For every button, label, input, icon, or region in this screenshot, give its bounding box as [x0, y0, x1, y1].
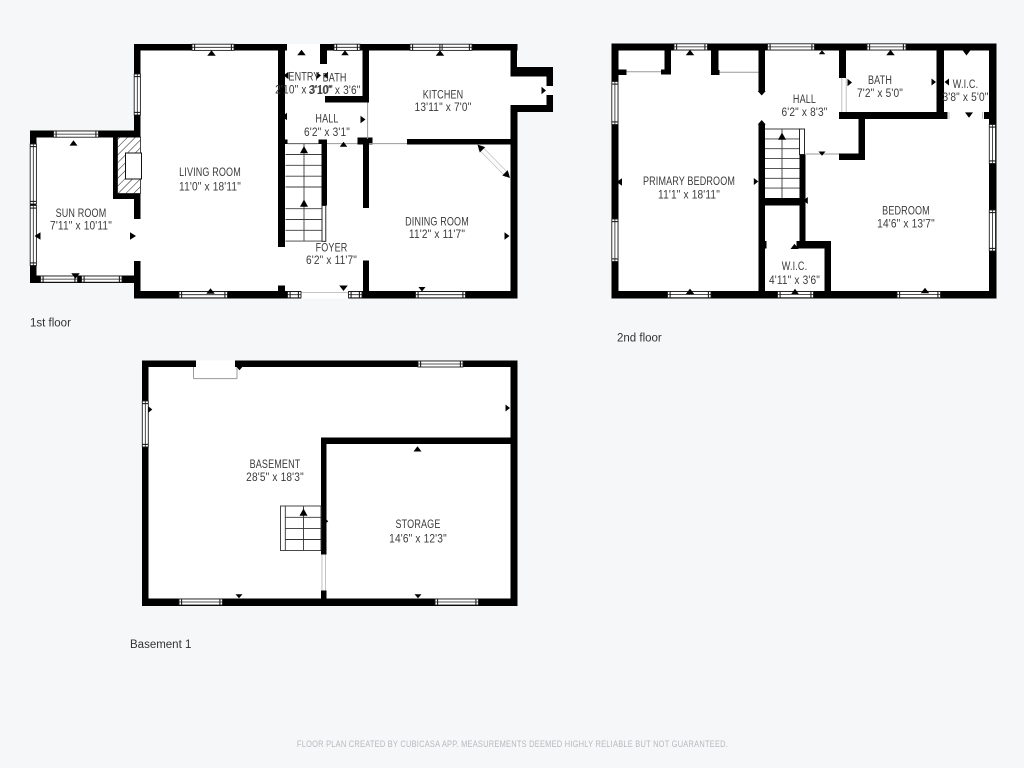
- svg-text:1st floor: 1st floor: [30, 318, 71, 330]
- svg-text:2nd floor: 2nd floor: [617, 333, 662, 345]
- svg-text:BEDROOM: BEDROOM: [882, 204, 930, 218]
- svg-text:13'11" x 7'0": 13'11" x 7'0": [415, 101, 472, 114]
- svg-text:3'10" x 3'6": 3'10" x 3'6": [309, 84, 361, 97]
- svg-text:DINING ROOM: DINING ROOM: [405, 215, 469, 229]
- svg-text:11'0" x 18'11": 11'0" x 18'11": [179, 181, 241, 194]
- svg-text:BASEMENT: BASEMENT: [250, 458, 301, 472]
- svg-text:PRIMARY BEDROOM: PRIMARY BEDROOM: [643, 175, 735, 189]
- svg-text:W.I.C.: W.I.C.: [953, 78, 978, 92]
- svg-text:6'2" x 3'1": 6'2" x 3'1": [304, 126, 350, 139]
- svg-text:11'2" x 11'7": 11'2" x 11'7": [409, 228, 465, 241]
- svg-text:HALL: HALL: [793, 93, 816, 107]
- svg-text:3'8" x 5'0": 3'8" x 5'0": [942, 91, 988, 104]
- svg-text:BATH: BATH: [868, 74, 892, 88]
- svg-text:28'5" x 18'3": 28'5" x 18'3": [246, 471, 304, 484]
- svg-text:4'11" x 3'6": 4'11" x 3'6": [769, 274, 820, 287]
- svg-text:FOYER: FOYER: [316, 241, 348, 255]
- svg-text:ENTRY: ENTRY: [288, 70, 319, 84]
- svg-text:7'11" x 10'11": 7'11" x 10'11": [50, 220, 112, 233]
- svg-text:6'2" x 8'3": 6'2" x 8'3": [781, 106, 827, 119]
- svg-text:6'2" x 11'7": 6'2" x 11'7": [306, 254, 357, 267]
- svg-text:14'6" x 12'3": 14'6" x 12'3": [389, 533, 447, 546]
- svg-text:W.I.C.: W.I.C.: [782, 260, 807, 274]
- svg-text:BATH: BATH: [323, 71, 347, 85]
- svg-text:HALL: HALL: [315, 112, 338, 126]
- svg-text:7'2" x 5'0": 7'2" x 5'0": [857, 87, 903, 100]
- svg-text:Basement 1: Basement 1: [130, 639, 191, 651]
- svg-text:11'1" x 18'11": 11'1" x 18'11": [658, 189, 720, 202]
- svg-text:LIVING ROOM: LIVING ROOM: [179, 166, 241, 180]
- svg-text:STORAGE: STORAGE: [396, 518, 441, 532]
- svg-text:14'6" x 13'7": 14'6" x 13'7": [877, 218, 935, 231]
- svg-text:SUN ROOM: SUN ROOM: [56, 207, 107, 221]
- svg-text:KITCHEN: KITCHEN: [423, 88, 464, 102]
- svg-text:FLOOR PLAN CREATED BY CUBICASA: FLOOR PLAN CREATED BY CUBICASA APP. MEAS…: [297, 738, 728, 749]
